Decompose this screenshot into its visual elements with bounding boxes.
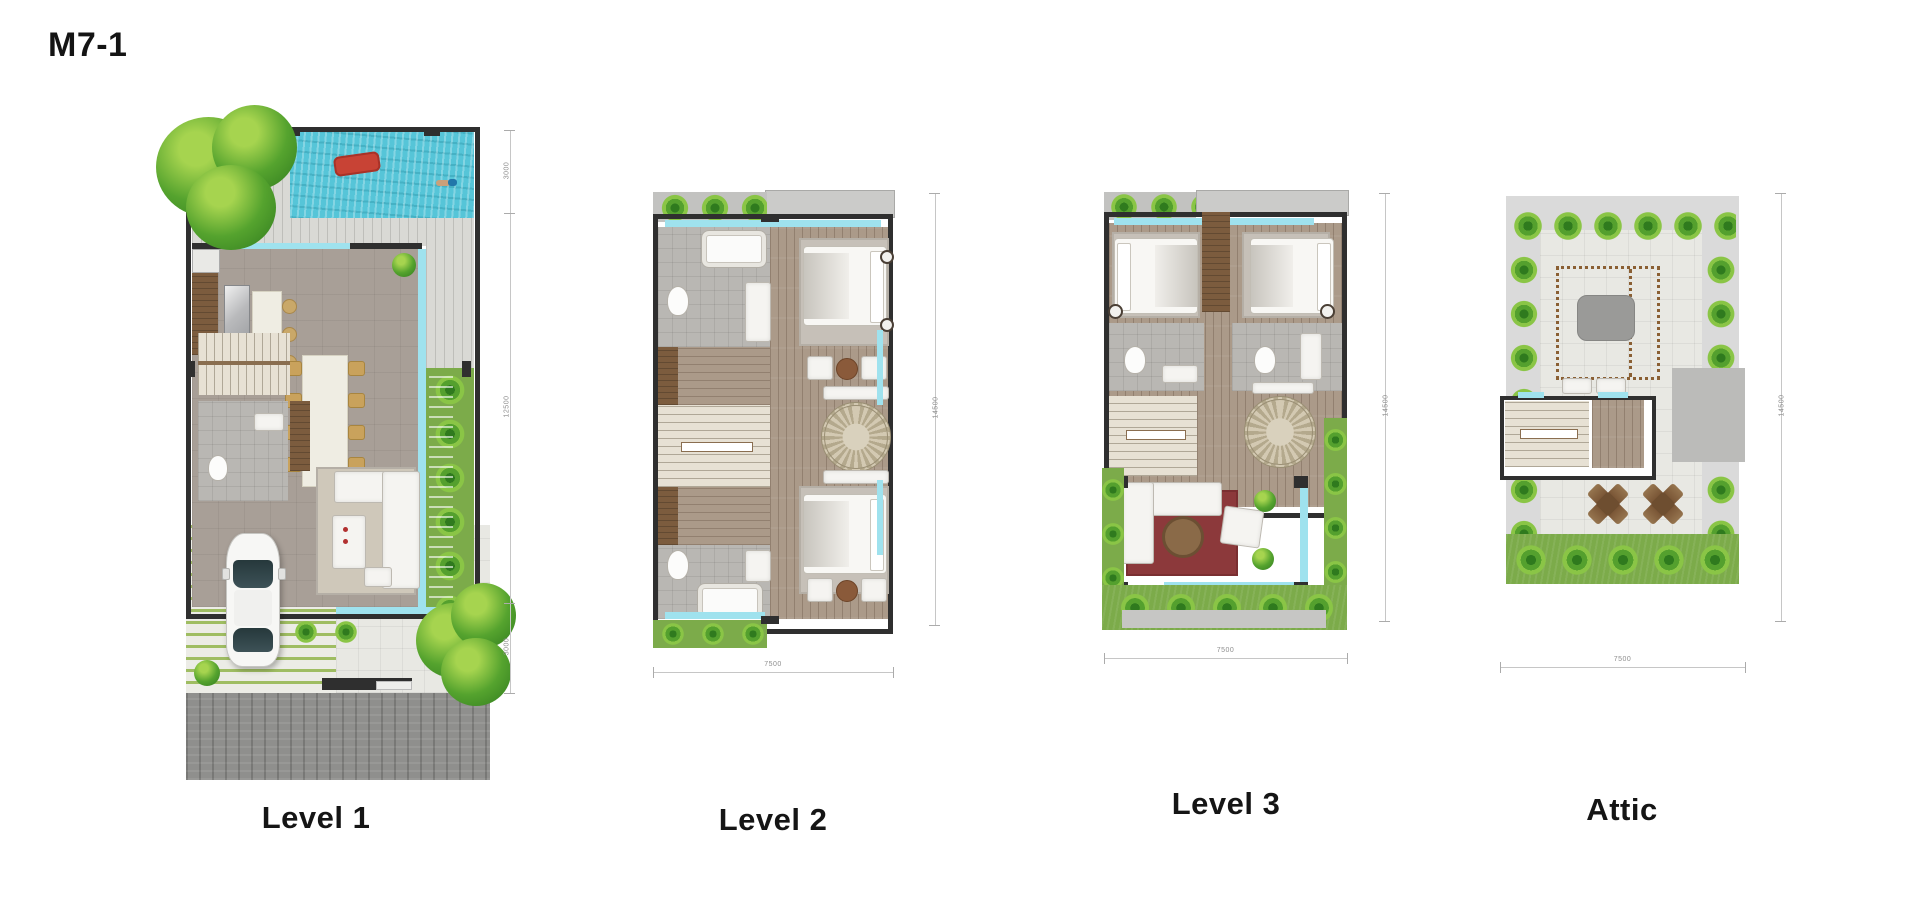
console-table <box>1252 382 1314 394</box>
side-table <box>836 580 858 602</box>
terrace-strip <box>1122 610 1326 628</box>
dimension-line <box>1500 667 1745 668</box>
floor-plan-level-2: 7500 14500 <box>653 190 893 650</box>
decor-red <box>343 527 348 532</box>
dimension-line <box>653 672 893 673</box>
bed-pillows <box>1317 243 1331 311</box>
dimension-tick <box>1775 193 1786 194</box>
vanity <box>1300 333 1322 380</box>
dimension-tick <box>1379 193 1390 194</box>
garden-right <box>1324 418 1347 610</box>
floor-plan-level-3: 7500 14500 <box>1104 190 1347 630</box>
lounge-chair <box>807 356 833 380</box>
decor-red <box>343 539 348 544</box>
garden-plants <box>1508 536 1737 584</box>
dimension-tick <box>653 667 654 678</box>
toilet <box>667 286 689 316</box>
dimension-value: 7500 <box>1104 647 1347 654</box>
toilet <box>1124 346 1146 374</box>
dimension-tick <box>1347 653 1348 664</box>
dimension-tick <box>1379 621 1390 622</box>
floor-plan-attic: 7500 14500 <box>1500 190 1745 630</box>
pool-float <box>333 151 381 177</box>
dimension-value: 12500 <box>503 396 510 418</box>
gate <box>376 681 412 690</box>
bed-blanket <box>1251 245 1293 307</box>
wall-light <box>880 250 894 264</box>
plan-label-attic: Attic <box>1586 792 1657 828</box>
glass-window <box>1518 392 1544 398</box>
stair-rail <box>1126 430 1186 440</box>
round-rug <box>821 402 891 472</box>
planter-bottom <box>653 620 767 648</box>
dimension-value: 14500 <box>1778 395 1785 417</box>
wall-column <box>424 127 440 136</box>
wall-light <box>1108 304 1123 319</box>
bed <box>803 246 887 326</box>
dimension-tick <box>929 193 940 194</box>
tv-console <box>332 515 366 569</box>
dimension-value: 3000 <box>503 162 510 180</box>
dimension-tick <box>504 693 515 694</box>
car-windshield <box>233 560 273 588</box>
dining-chair <box>348 393 365 408</box>
wall-column <box>186 361 195 377</box>
wall-light <box>1320 304 1335 319</box>
lounge-chair <box>861 356 887 380</box>
wall-column <box>761 214 779 222</box>
glass-window-right <box>877 480 883 555</box>
stair-rail <box>198 361 290 365</box>
wardrobe <box>658 487 678 545</box>
stair-rail <box>1520 429 1578 439</box>
side-garden <box>426 368 474 607</box>
bed <box>1114 238 1198 314</box>
pergola <box>1556 266 1660 380</box>
bed-pillows <box>1117 243 1131 311</box>
lounge-chair <box>861 578 887 602</box>
vanity <box>745 282 771 342</box>
dining-chair <box>348 425 365 440</box>
glass-window <box>1598 392 1628 398</box>
garden-bench-slats <box>429 376 453 598</box>
car-mirror <box>278 568 286 580</box>
dimension-tick <box>929 625 940 626</box>
page-title: M7-1 <box>48 26 127 65</box>
sofa <box>334 471 388 503</box>
vanity <box>254 413 284 431</box>
car-roof <box>234 590 272 626</box>
bed-blanket <box>1155 245 1197 307</box>
toilet <box>208 455 228 481</box>
wardrobe <box>658 347 678 405</box>
ottoman <box>364 567 392 587</box>
dimension-tick <box>1104 653 1105 664</box>
toilet <box>667 550 689 580</box>
wall-column <box>761 616 779 624</box>
hall-closet <box>290 401 310 471</box>
vanity <box>1162 365 1198 383</box>
stair-rail <box>681 442 753 452</box>
dimension-tick <box>1775 621 1786 622</box>
plan-label-level-1: Level 1 <box>262 800 371 836</box>
indoor-plant <box>1254 490 1276 512</box>
indoor-plant <box>1252 548 1274 570</box>
lounge-chair <box>807 578 833 602</box>
dimension-tick <box>504 603 515 604</box>
bed-blanket <box>804 501 849 567</box>
bench <box>1562 378 1592 394</box>
plan-label-level-2: Level 2 <box>719 802 828 838</box>
swimmer-suit <box>448 179 457 186</box>
bar-stool <box>282 299 297 314</box>
water-edge-living <box>1300 482 1308 588</box>
shrub <box>194 660 220 686</box>
dining-chair <box>348 361 365 376</box>
dimension-tick <box>504 213 515 214</box>
side-table <box>836 358 858 380</box>
landing-floor <box>1592 400 1644 468</box>
floor-plan-level-1: 3000 12500 3000 <box>186 115 490 780</box>
dimension-tick <box>504 130 515 131</box>
dimension-tick <box>1500 662 1501 673</box>
dimension-value: 14500 <box>932 397 939 419</box>
toilet <box>1254 346 1276 374</box>
glass-window-right <box>877 330 883 405</box>
dimension-line <box>1104 658 1347 659</box>
bed <box>803 494 887 574</box>
swimming-pool <box>290 132 474 218</box>
car <box>226 533 280 667</box>
water-edge-bottom <box>665 612 765 619</box>
dimension-value: 7500 <box>1500 656 1745 663</box>
wardrobe <box>1202 212 1230 312</box>
tree <box>156 105 306 255</box>
bed <box>1250 238 1334 314</box>
wall-column <box>462 361 471 377</box>
dimension-value: 7500 <box>653 661 893 668</box>
round-rug <box>1244 396 1316 468</box>
sofa-chaise <box>1122 482 1154 564</box>
bathroom-2 <box>1232 323 1342 391</box>
indoor-plant <box>392 253 416 277</box>
dimension-tick <box>1745 662 1746 673</box>
deck-right-column <box>426 218 474 368</box>
spa-table <box>1577 295 1635 341</box>
planter-plants-top <box>1508 202 1736 250</box>
bed-blanket <box>804 253 849 319</box>
bathtub <box>701 230 767 268</box>
dimension-tick <box>893 667 894 678</box>
armchair <box>1220 505 1265 548</box>
car-rear-window <box>233 628 273 652</box>
car-mirror <box>222 568 230 580</box>
floor-plans-sheet: M7-1 <box>0 0 1920 923</box>
roof-section <box>1672 368 1745 462</box>
dimension-value: 3000 <box>503 638 510 656</box>
coffee-table <box>1162 516 1204 558</box>
plan-label-level-3: Level 3 <box>1172 786 1281 822</box>
wall-column <box>1294 476 1308 488</box>
entry-plants <box>286 618 358 646</box>
dimension-value: 14500 <box>1382 395 1389 417</box>
vanity <box>745 550 771 582</box>
